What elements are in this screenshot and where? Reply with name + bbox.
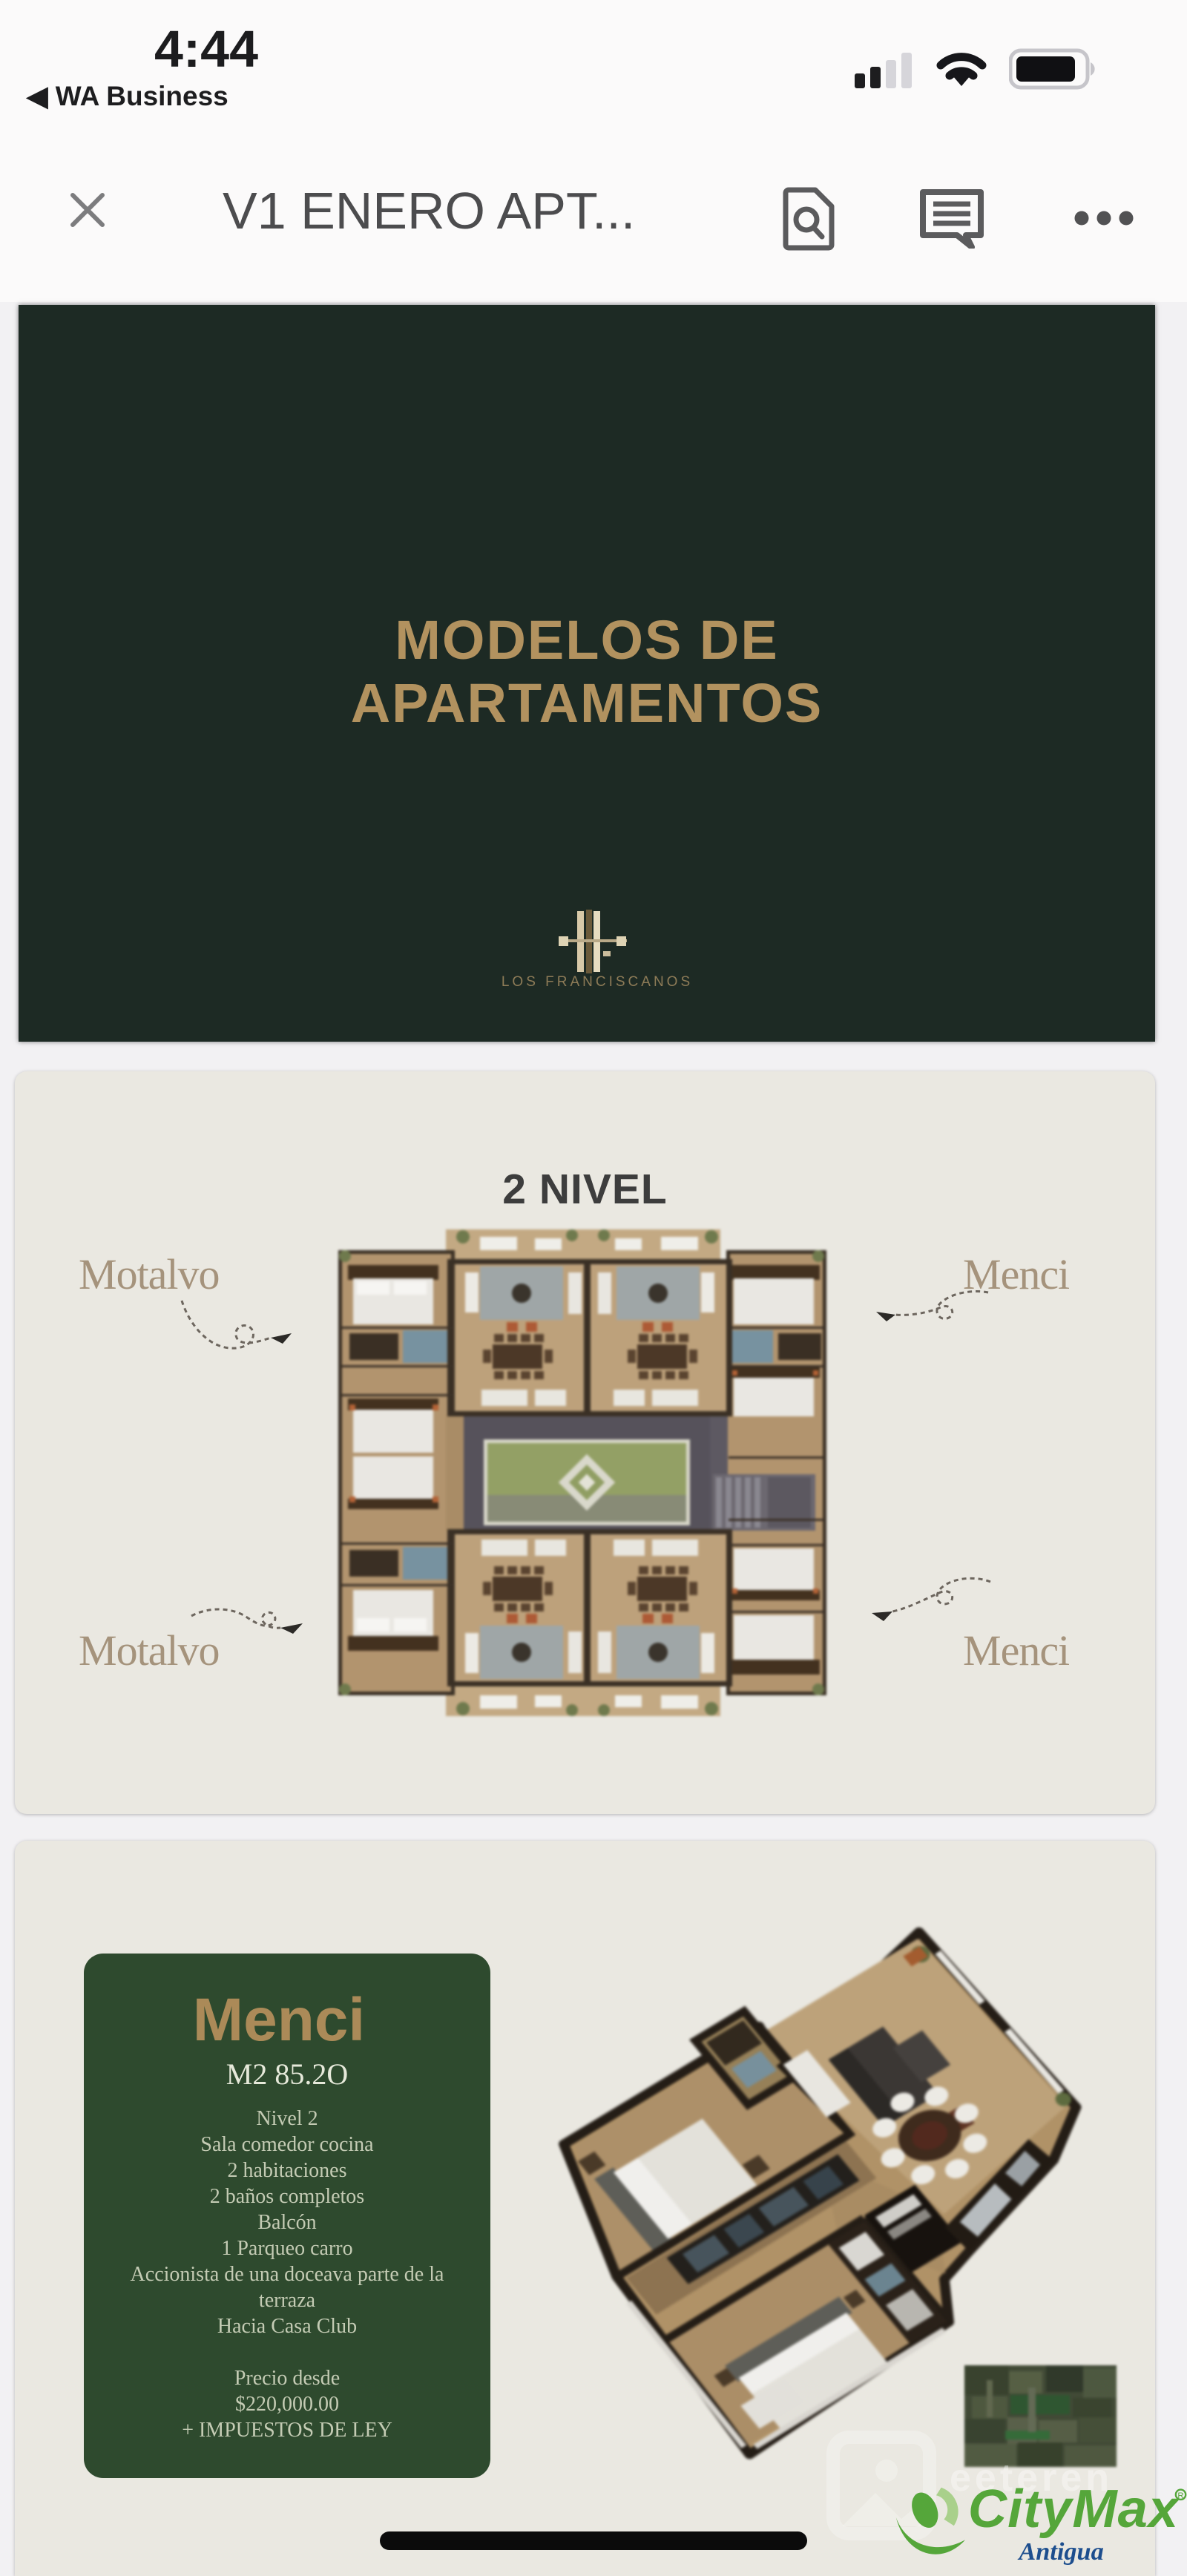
svg-text:R: R — [1177, 2491, 1183, 2500]
svg-text:Antigua: Antigua — [1017, 2537, 1103, 2566]
svg-text:CityMax: CityMax — [968, 2479, 1180, 2539]
